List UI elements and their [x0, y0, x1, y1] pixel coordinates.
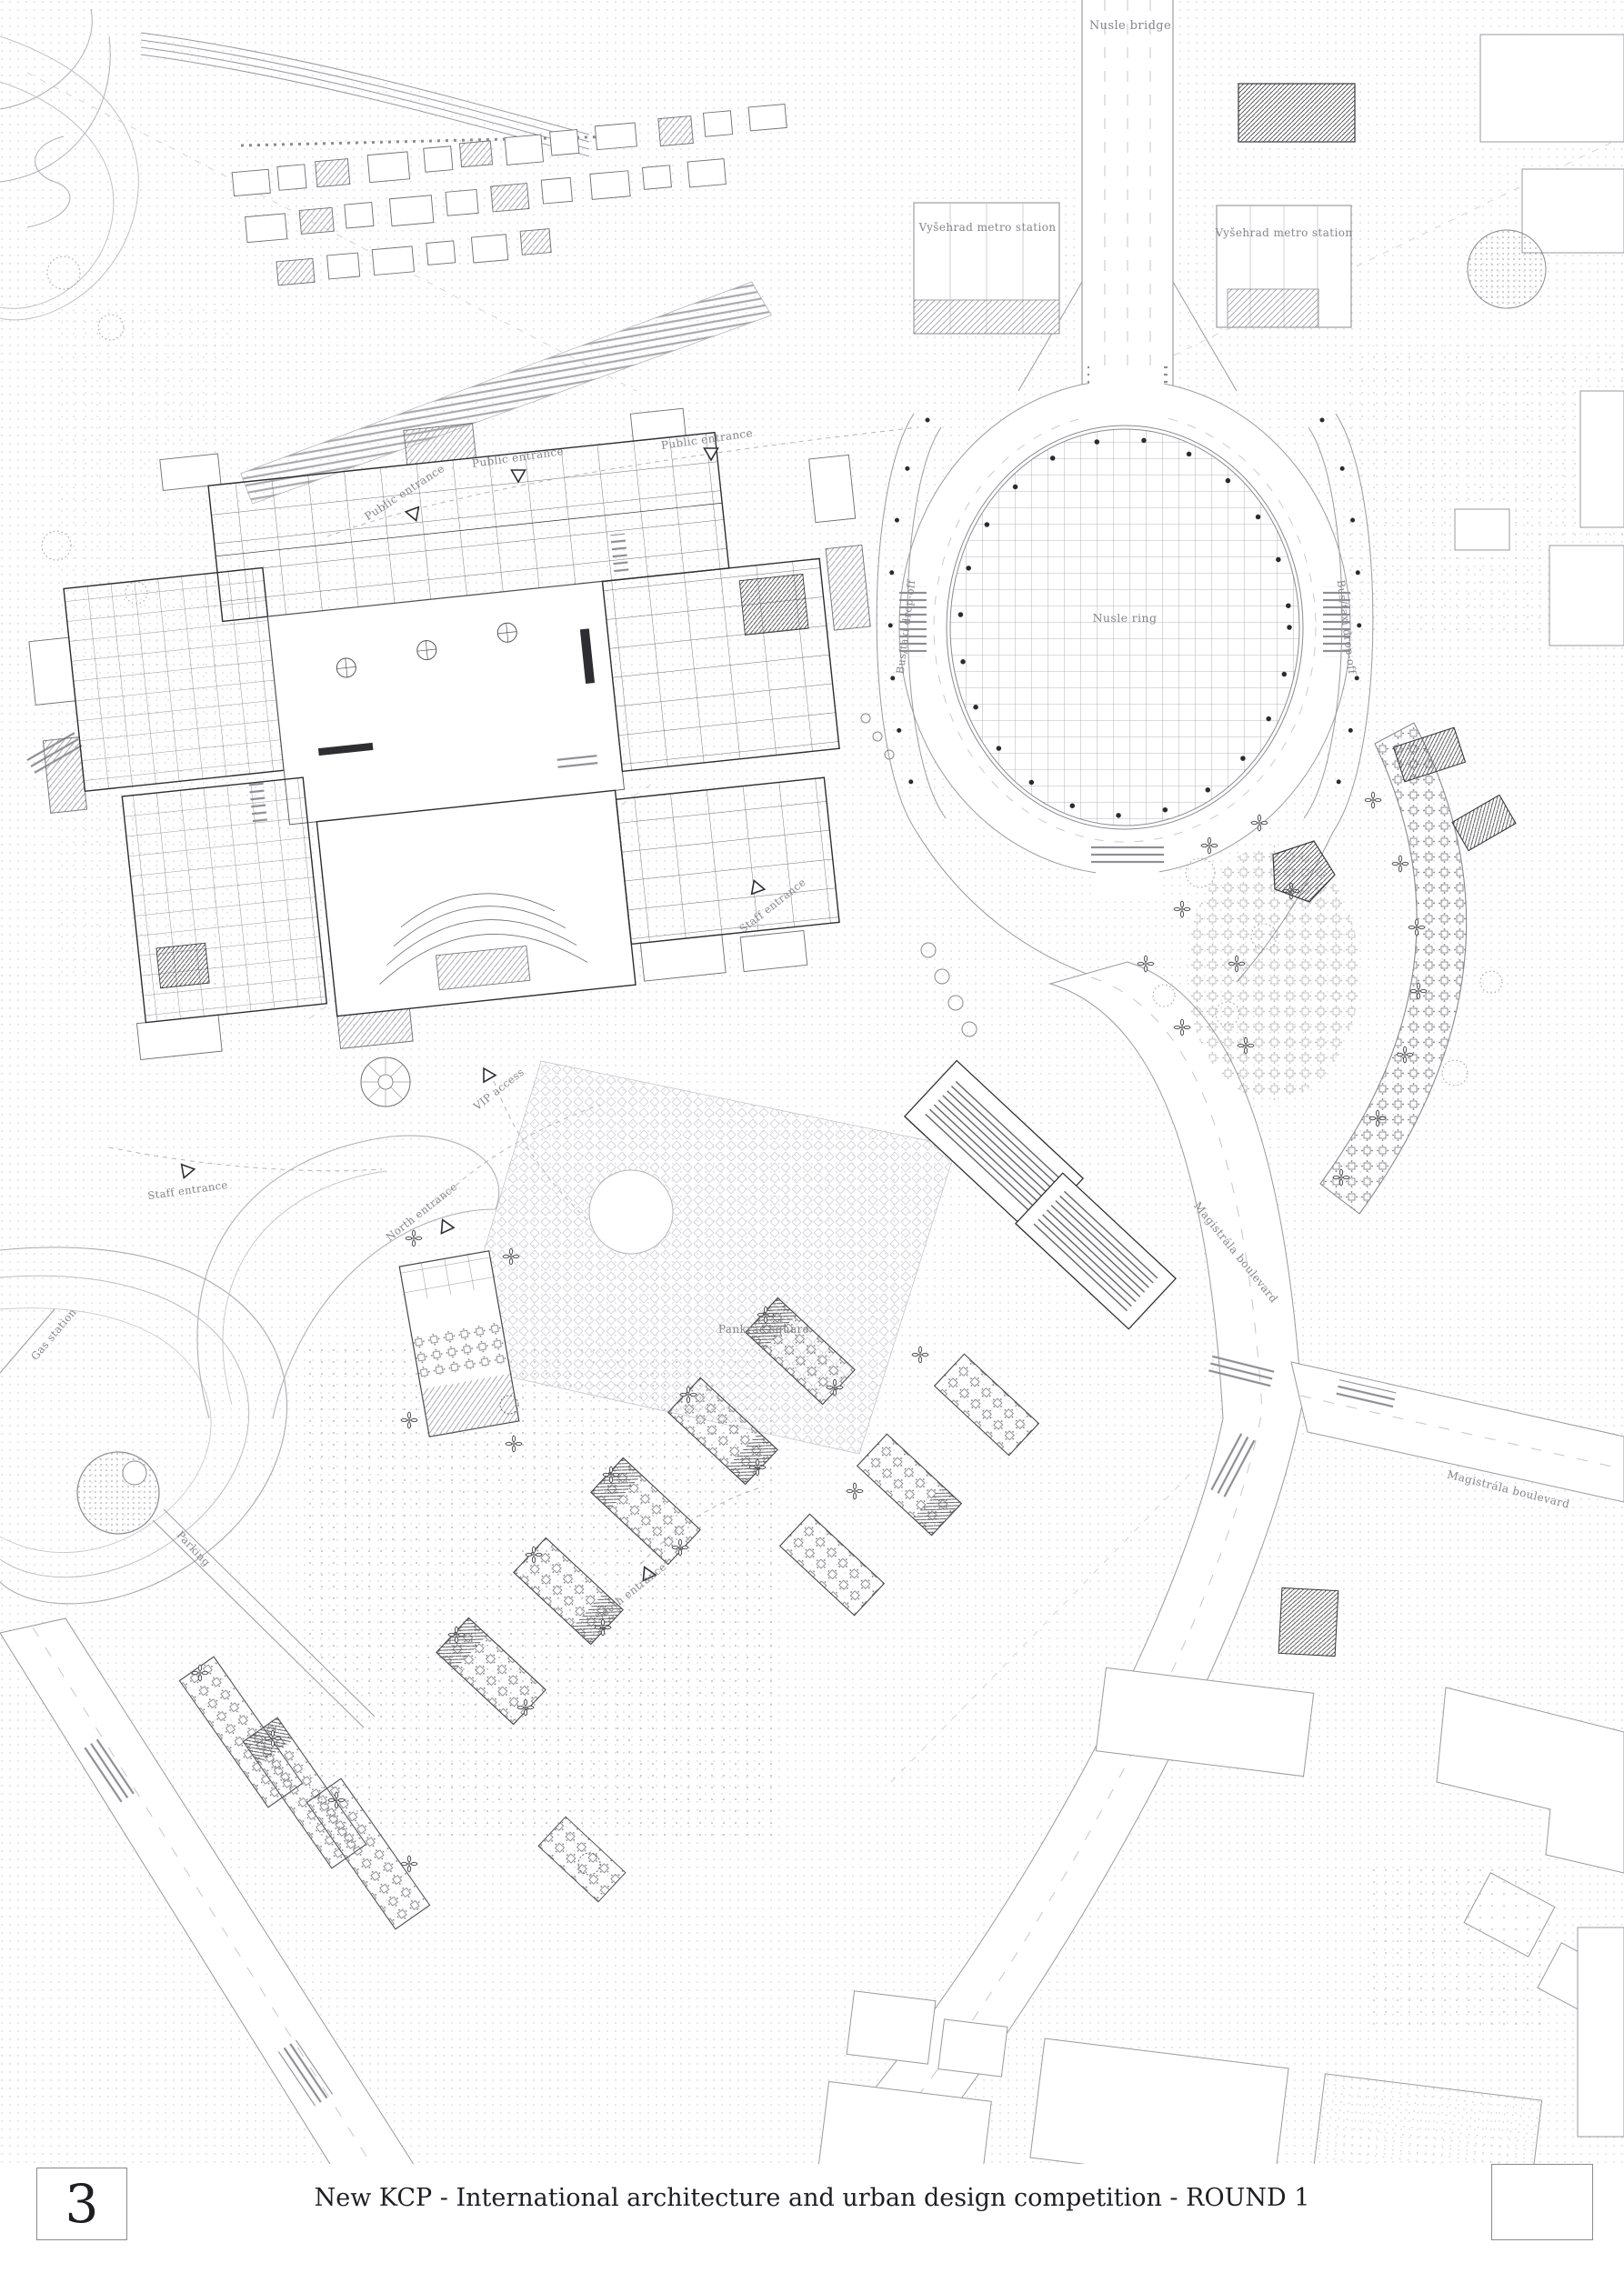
- label-nusle-ring: Nusle ring: [1093, 611, 1158, 625]
- competition-board-sheet: Nusle bridge Vyšehrad metro station Vyše…: [0, 0, 1624, 2273]
- site-plan-drawing: Nusle bridge Vyšehrad metro station Vyše…: [0, 0, 1624, 2273]
- kcp-round-plaza: [361, 1057, 410, 1106]
- bridge-side-building: [1238, 84, 1355, 142]
- sheet-title: New KCP - International architecture and…: [0, 2184, 1624, 2212]
- label-nusle-bridge: Nusle bridge: [1089, 19, 1171, 33]
- label-metro-station-west: Vyšehrad metro station: [918, 221, 1057, 234]
- empty-corner-box: [1491, 2164, 1593, 2240]
- label-metro-station-east: Vyšehrad metro station: [1215, 226, 1353, 239]
- label-square: Pankrác square: [718, 1323, 809, 1336]
- metro-station-east-box: [1217, 205, 1351, 327]
- sheet-footer: 3 New KCP - International architecture a…: [0, 2164, 1624, 2273]
